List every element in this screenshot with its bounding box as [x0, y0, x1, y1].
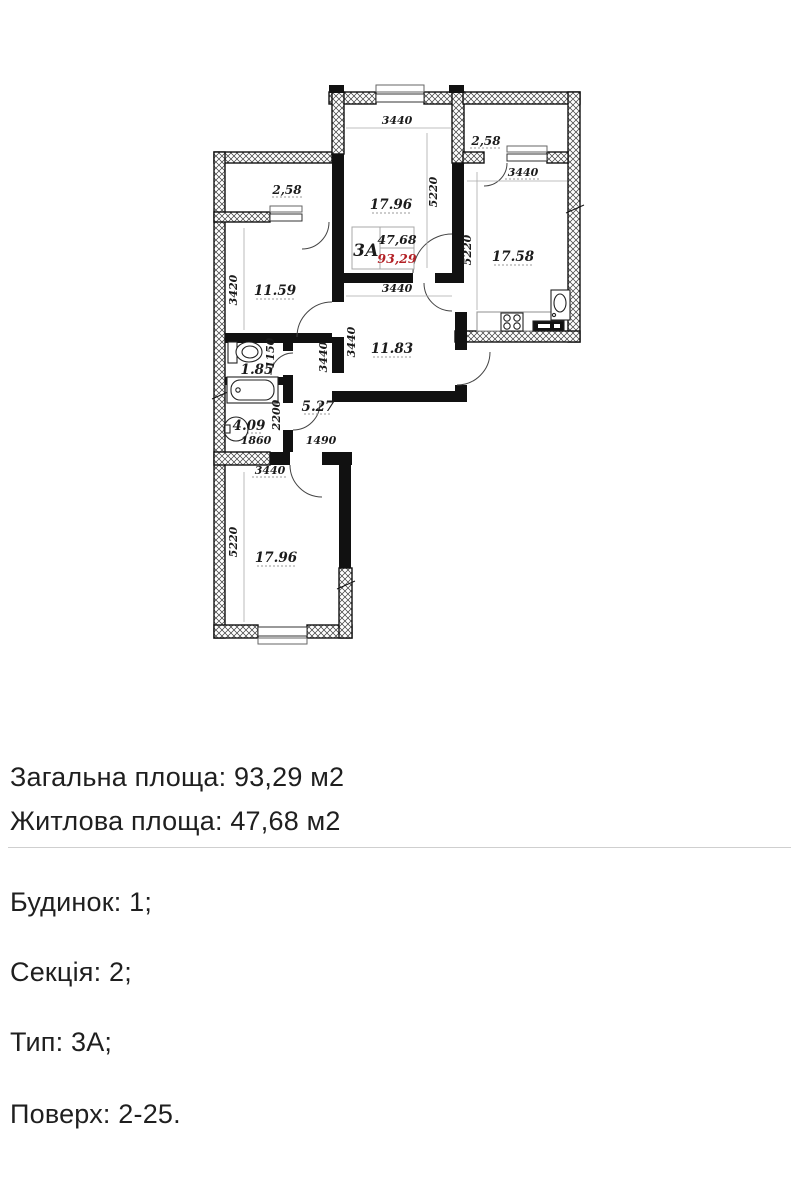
- dim-bedroom2-top: 3440: [255, 464, 286, 477]
- wall-segment: [452, 92, 464, 163]
- wall-segment: [339, 452, 351, 568]
- bath-sink-tap: [225, 425, 230, 433]
- wall-segment: [332, 92, 344, 154]
- door-arc-living-down: [424, 283, 452, 311]
- burner: [514, 315, 520, 321]
- wall-segment: [214, 625, 258, 638]
- wall-segment: [214, 152, 225, 638]
- wall-segment: [449, 85, 464, 93]
- wall-segment: [332, 154, 344, 302]
- listing-page: 3А 47,68 93,29 2,58 17.96 2,58 11.59 17.…: [0, 0, 799, 1200]
- wall-segment: [463, 92, 580, 104]
- wall-segment: [332, 337, 344, 373]
- door-arc-balcony-left: [302, 222, 329, 249]
- living-area-value: 47,68: [377, 232, 416, 247]
- type-box: 3А 47,68 93,29: [352, 227, 417, 269]
- wall-segment: [283, 375, 293, 403]
- window: [270, 214, 302, 221]
- window: [258, 627, 307, 636]
- living-area-line: Житлова площа: 47,68 м2: [10, 806, 341, 837]
- dim-hall-bottom: 1490: [306, 434, 337, 447]
- bedroom-area: 11.59: [254, 283, 297, 299]
- toilet-bowl-inner: [242, 346, 258, 358]
- stove-icon: [501, 313, 523, 331]
- burner: [514, 323, 520, 329]
- dim-bath-bottom: 1860: [241, 434, 272, 447]
- wall-segment: [214, 152, 332, 163]
- window-sill: [507, 146, 547, 152]
- dim-kitchen-top: 3440: [508, 166, 539, 179]
- kitchen-appliance-icon: [533, 321, 564, 331]
- building-line: Будинок: 1;: [10, 887, 152, 918]
- wall-segment: [332, 391, 467, 402]
- total-area-value: 93,29: [377, 251, 416, 266]
- window: [507, 154, 547, 161]
- wall-segment: [283, 343, 293, 351]
- wall-segment: [547, 152, 568, 163]
- divider-line: [8, 847, 791, 848]
- wall-segment: [463, 152, 484, 163]
- burner: [504, 323, 510, 329]
- appliance-slit: [554, 324, 560, 328]
- floor-line: Поверх: 2-25.: [10, 1099, 181, 1130]
- toilet-icon: [228, 342, 262, 363]
- total-area-line: Загальна площа: 93,29 м2: [10, 762, 344, 793]
- kitchen-area: 17.58: [492, 249, 535, 265]
- apartment-type-label: 3А: [353, 241, 379, 261]
- kitchen-sink-icon: [551, 290, 570, 320]
- bath-area: 4.09: [233, 418, 266, 434]
- window-sill: [270, 206, 302, 212]
- section-line: Секція: 2;: [10, 957, 132, 988]
- dim-corridor-left-a: 3440: [317, 341, 330, 372]
- wall-segment: [283, 430, 293, 452]
- hall-area: 5.27: [302, 399, 335, 415]
- door-arc-balcony-right: [484, 163, 507, 186]
- balcony-right-area: 2,58: [470, 134, 501, 148]
- window-sill: [258, 638, 307, 644]
- dim-bedroom2-left: 5220: [227, 526, 240, 557]
- bathtub-drain: [236, 388, 240, 392]
- balcony-left-area: 2,58: [271, 183, 302, 197]
- dim-living-top: 3440: [382, 114, 413, 127]
- wall-segment: [329, 85, 344, 93]
- wall-segment: [225, 333, 332, 343]
- wall-segment: [214, 212, 270, 222]
- corridor-area: 11.83: [371, 341, 413, 357]
- door-arc-living-up: [413, 234, 452, 273]
- wall-segment: [455, 312, 467, 350]
- kitchen-sink-basin: [554, 294, 566, 312]
- bathtub-icon: [227, 377, 278, 403]
- window: [376, 94, 424, 102]
- wall-segment: [455, 385, 467, 393]
- dim-corridor-top: 3440: [382, 282, 413, 295]
- floor-plan-svg: 3А 47,68 93,29 2,58 17.96 2,58 11.59 17.…: [0, 0, 799, 740]
- dim-bedroom-left: 3420: [227, 274, 240, 305]
- wall-segment: [455, 331, 580, 342]
- wall-segment: [339, 568, 352, 638]
- floor-plan: 3А 47,68 93,29 2,58 17.96 2,58 11.59 17.…: [0, 0, 799, 740]
- dim-kitchen-left: 5220: [461, 234, 474, 265]
- bedroom2-area: 17.96: [255, 550, 298, 566]
- burner: [504, 315, 510, 321]
- room-area-labels: 2,58 17.96 2,58 11.59 17.58 1.85 4.09 5.…: [233, 134, 535, 566]
- windows: [258, 85, 547, 644]
- kitchen-sink-tap: [552, 313, 555, 316]
- dim-bath-right: 2200: [270, 399, 283, 431]
- door-arc-bedroom2: [290, 465, 322, 497]
- dim-living-right: 5220: [427, 176, 440, 207]
- dim-wc-right: 1150: [264, 337, 277, 368]
- living-area: 17.96: [370, 197, 413, 213]
- window-sill: [376, 85, 424, 92]
- door-arc-bedroom: [297, 302, 332, 337]
- dim-corridor-left-b: 3440: [345, 326, 358, 357]
- door-arc-entrance: [457, 352, 490, 385]
- appliance-slit: [538, 324, 550, 328]
- type-line: Тип: 3А;: [10, 1027, 112, 1058]
